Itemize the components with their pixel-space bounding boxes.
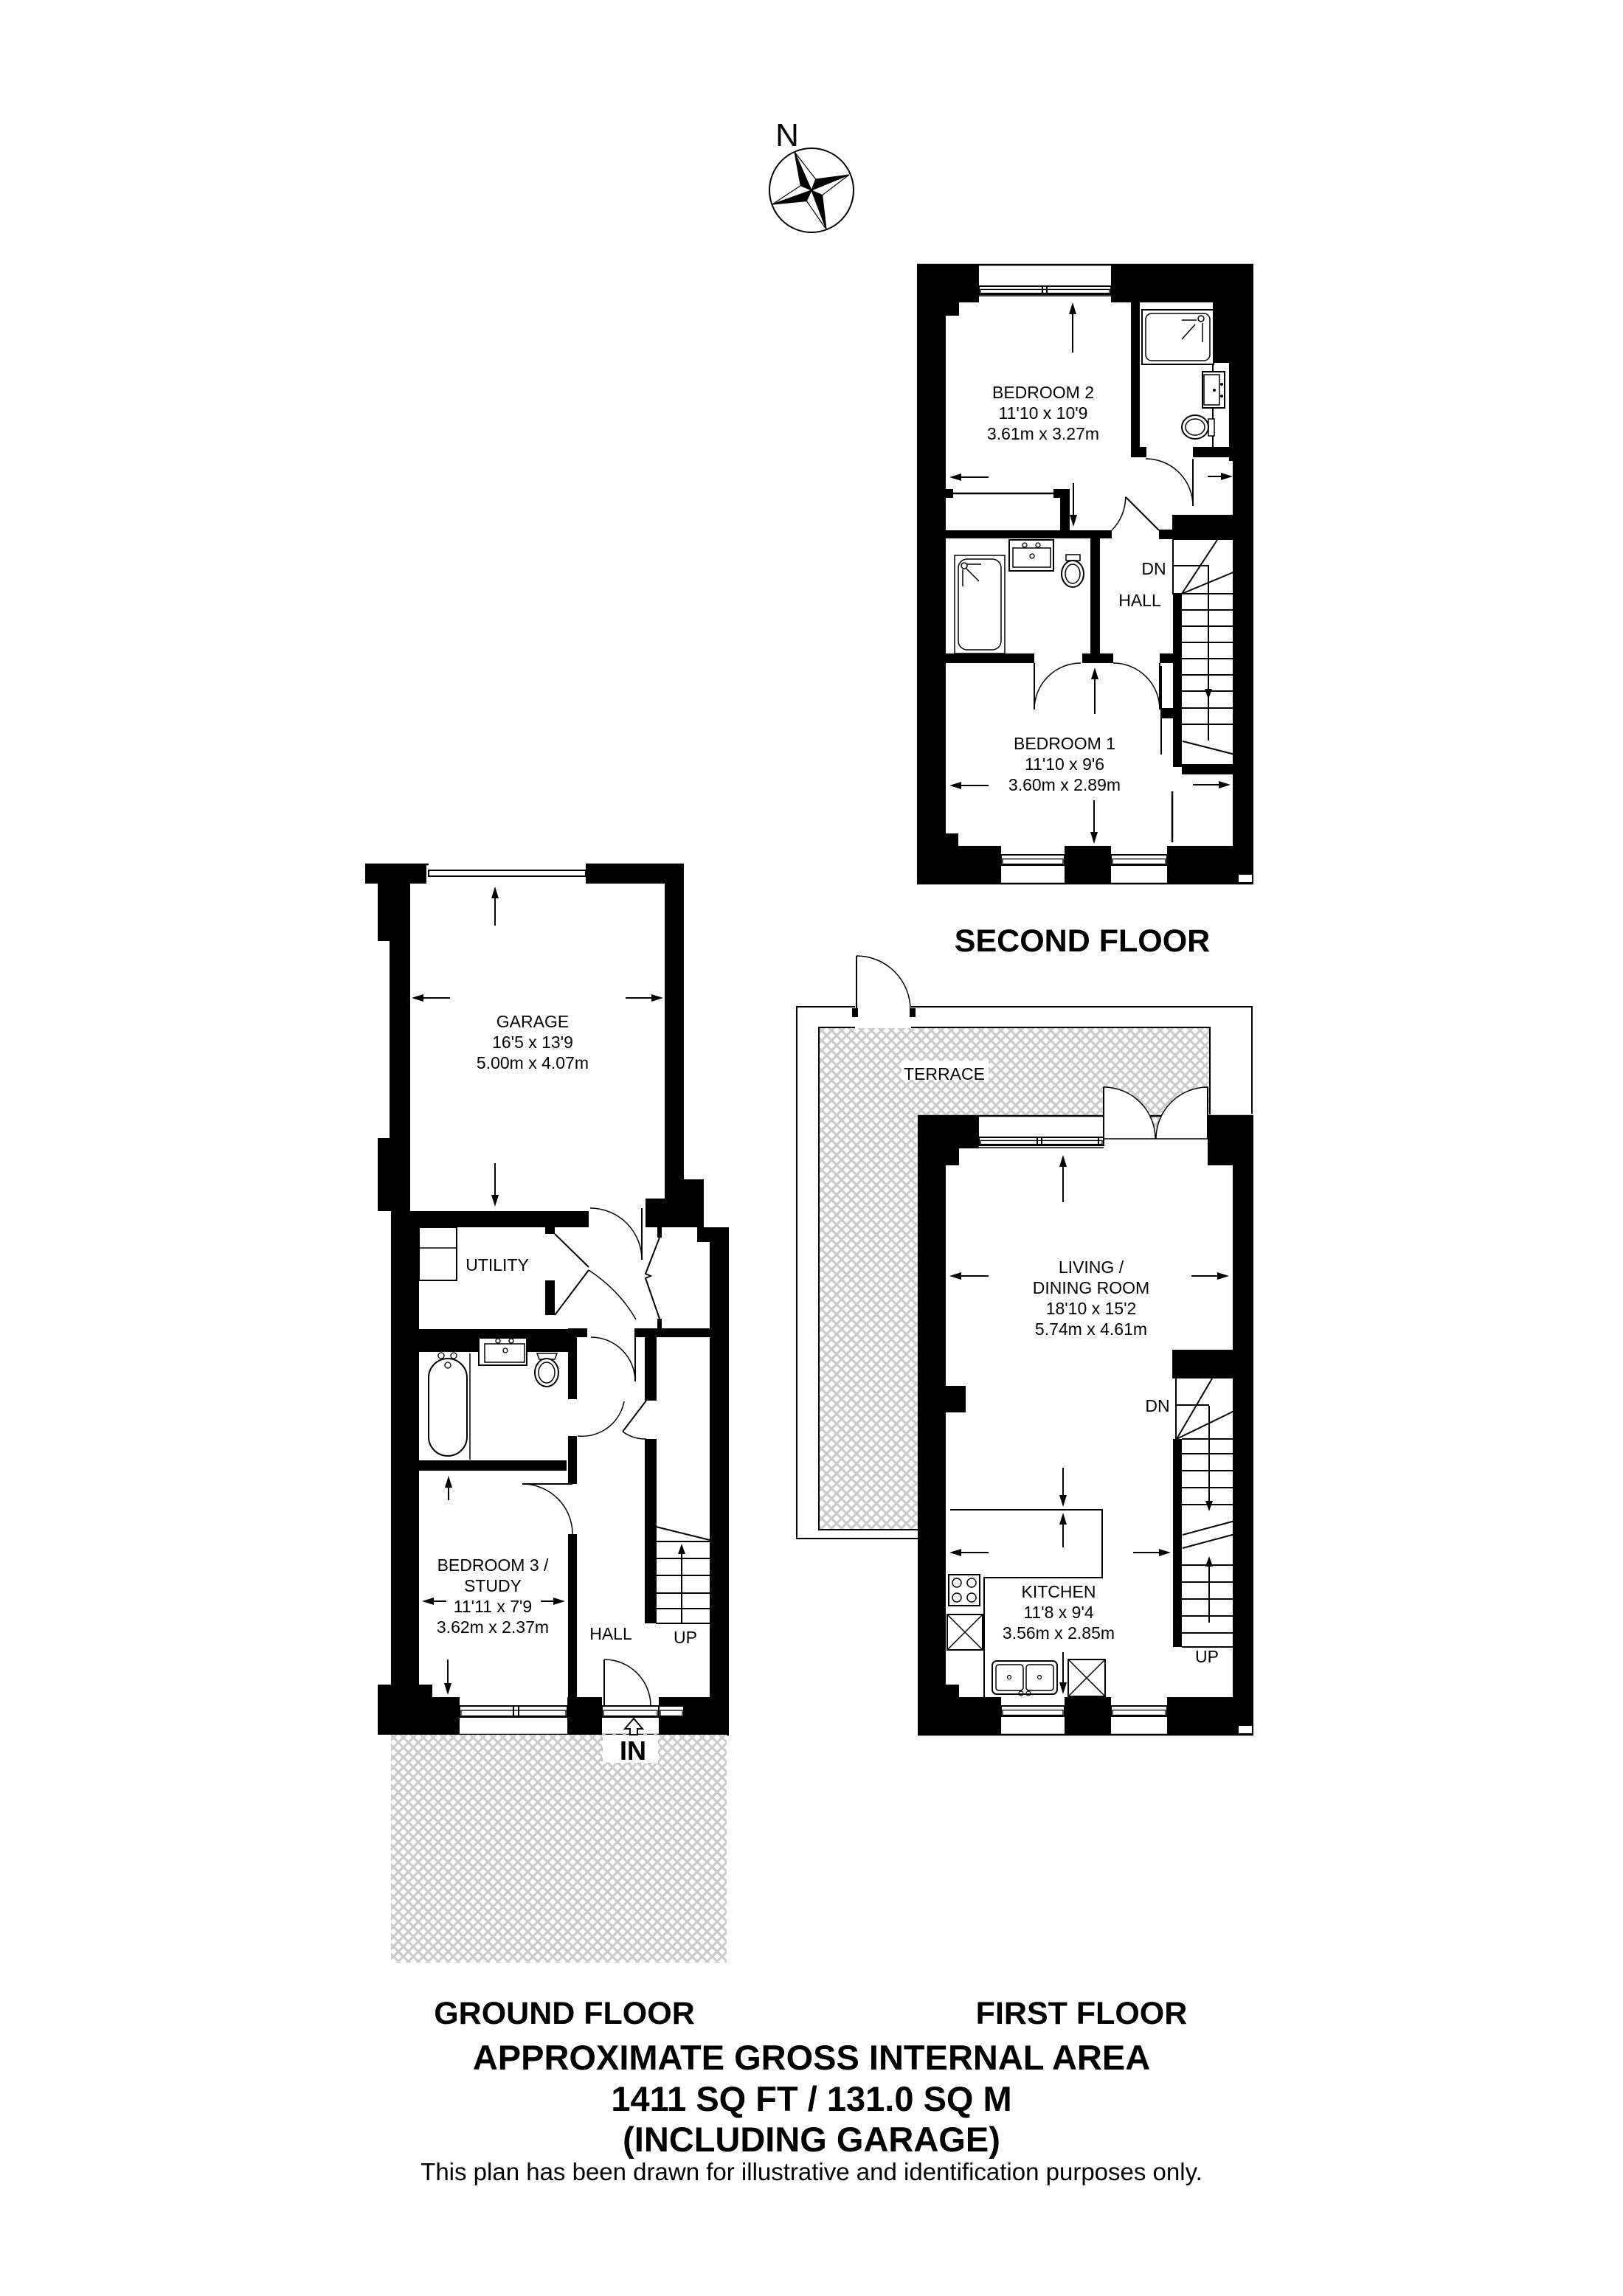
svg-text:GARAGE: GARAGE (496, 1012, 569, 1031)
svg-text:3.62m x 2.37m: 3.62m x 2.37m (437, 1617, 549, 1637)
svg-text:GROUND FLOOR: GROUND FLOOR (434, 1996, 695, 2031)
svg-text:11'11 x 7'9: 11'11 x 7'9 (454, 1597, 532, 1616)
svg-text:IN: IN (620, 1735, 646, 1766)
svg-text:SECOND FLOOR: SECOND FLOOR (955, 923, 1210, 959)
svg-text:BEDROOM 1: BEDROOM 1 (1014, 734, 1115, 753)
svg-text:(INCLUDING GARAGE): (INCLUDING GARAGE) (623, 2120, 1000, 2159)
svg-text:5.74m x 4.61m: 5.74m x 4.61m (1035, 1319, 1147, 1339)
svg-text:16'5 x 13'9: 16'5 x 13'9 (492, 1033, 573, 1052)
svg-text:DINING ROOM: DINING ROOM (1033, 1278, 1149, 1297)
svg-text:BEDROOM 2: BEDROOM 2 (992, 383, 1094, 402)
svg-text:HALL: HALL (589, 1624, 632, 1643)
svg-text:TERRACE: TERRACE (904, 1064, 985, 1083)
svg-text:KITCHEN: KITCHEN (1022, 1582, 1096, 1601)
svg-text:3.56m x 2.85m: 3.56m x 2.85m (1003, 1623, 1115, 1643)
svg-text:HALL: HALL (1118, 591, 1161, 610)
svg-text:This plan has been drawn for i: This plan has been drawn for illustrativ… (421, 2158, 1202, 2185)
svg-text:DN: DN (1145, 1396, 1169, 1415)
svg-text:1411 SQ FT / 131.0 SQ M: 1411 SQ FT / 131.0 SQ M (611, 2079, 1011, 2118)
svg-text:APPROXIMATE GROSS INTERNAL ARE: APPROXIMATE GROSS INTERNAL AREA (473, 2038, 1150, 2077)
svg-text:5.00m x 4.07m: 5.00m x 4.07m (477, 1053, 589, 1072)
svg-text:UP: UP (674, 1628, 697, 1647)
svg-text:UP: UP (1195, 1647, 1219, 1666)
svg-text:N: N (775, 117, 799, 153)
svg-text:DN: DN (1141, 559, 1166, 578)
svg-text:BEDROOM 3 /: BEDROOM 3 / (437, 1555, 549, 1575)
svg-text:UTILITY: UTILITY (466, 1255, 529, 1274)
svg-text:STUDY: STUDY (464, 1576, 522, 1595)
svg-text:18'10 x 15'2: 18'10 x 15'2 (1046, 1299, 1137, 1318)
svg-text:11'10 x 10'9: 11'10 x 10'9 (999, 403, 1088, 423)
svg-text:3.60m x 2.89m: 3.60m x 2.89m (1008, 775, 1121, 794)
svg-text:3.61m x 3.27m: 3.61m x 3.27m (987, 424, 1099, 443)
svg-text:11'10 x 9'6: 11'10 x 9'6 (1025, 755, 1104, 774)
svg-text:11'8 x 9'4: 11'8 x 9'4 (1023, 1603, 1094, 1622)
svg-text:FIRST FLOOR: FIRST FLOOR (976, 1996, 1188, 2031)
svg-text:LIVING /: LIVING / (1059, 1258, 1124, 1277)
